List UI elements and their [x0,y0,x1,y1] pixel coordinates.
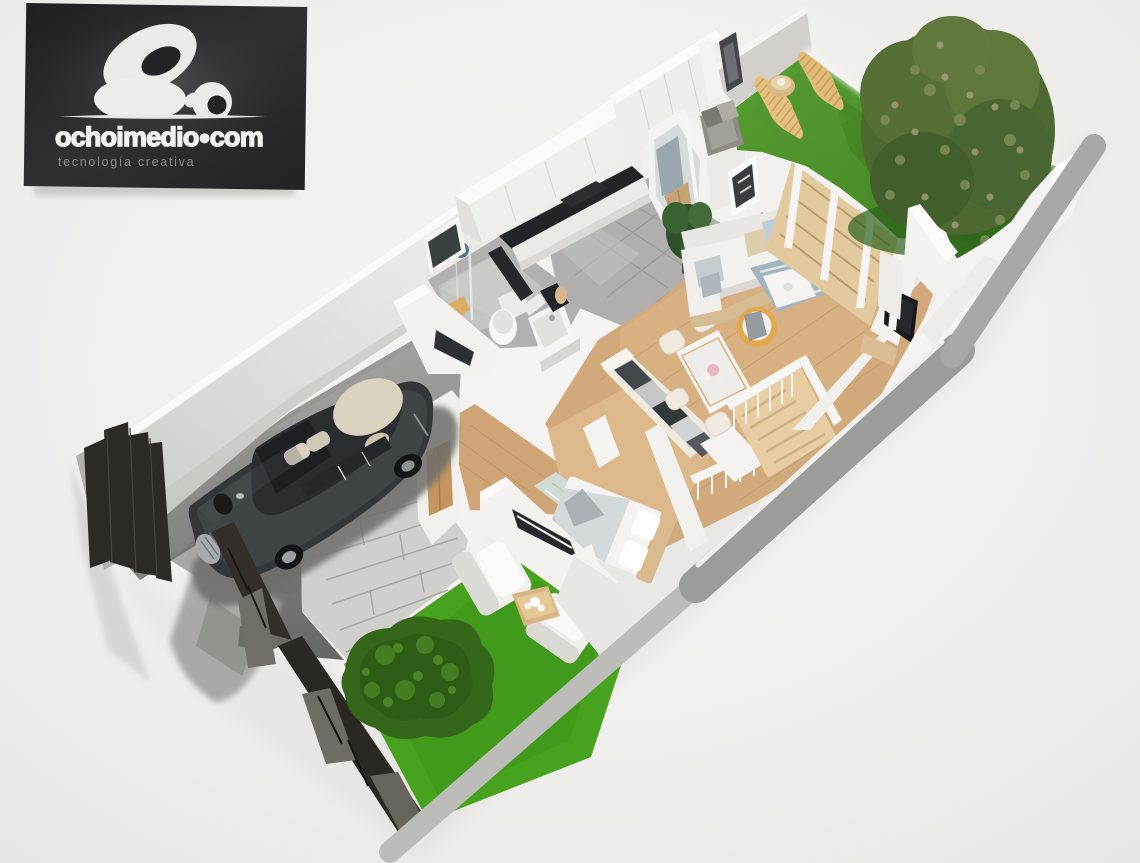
svg-text:ochoimedio●com: ochoimedio●com [55,122,263,152]
svg-text:tecnología creativa: tecnología creativa [58,155,195,169]
